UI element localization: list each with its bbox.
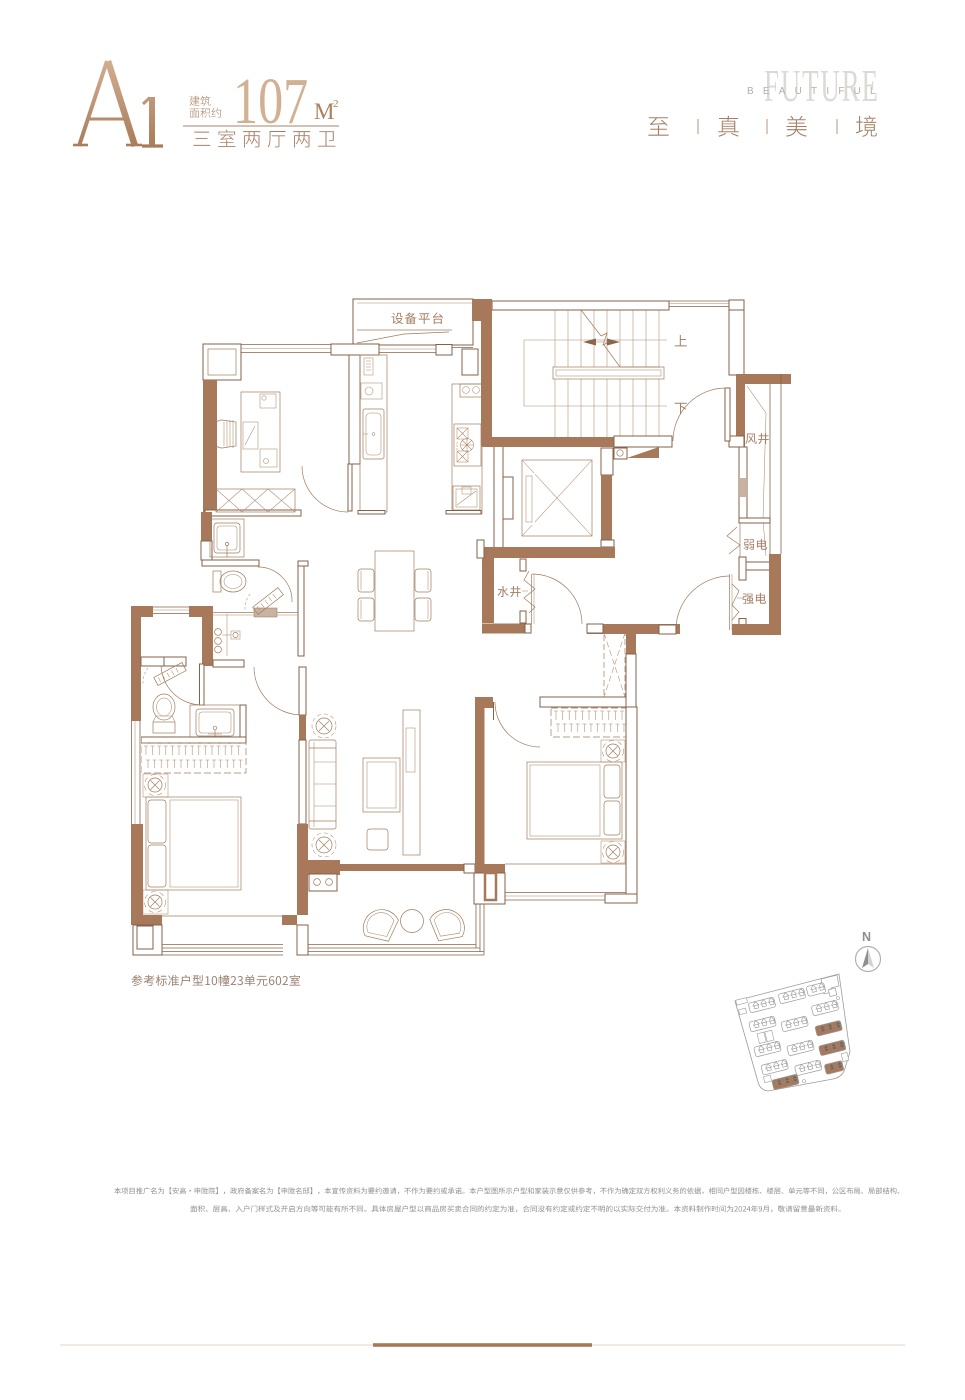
svg-text:107: 107 <box>233 64 308 137</box>
svg-text:2: 2 <box>333 98 339 110</box>
svg-text:M: M <box>314 99 334 124</box>
svg-text:N: N <box>862 930 871 944</box>
svg-text:BEAUTIFUL: BEAUTIFUL <box>747 86 885 97</box>
